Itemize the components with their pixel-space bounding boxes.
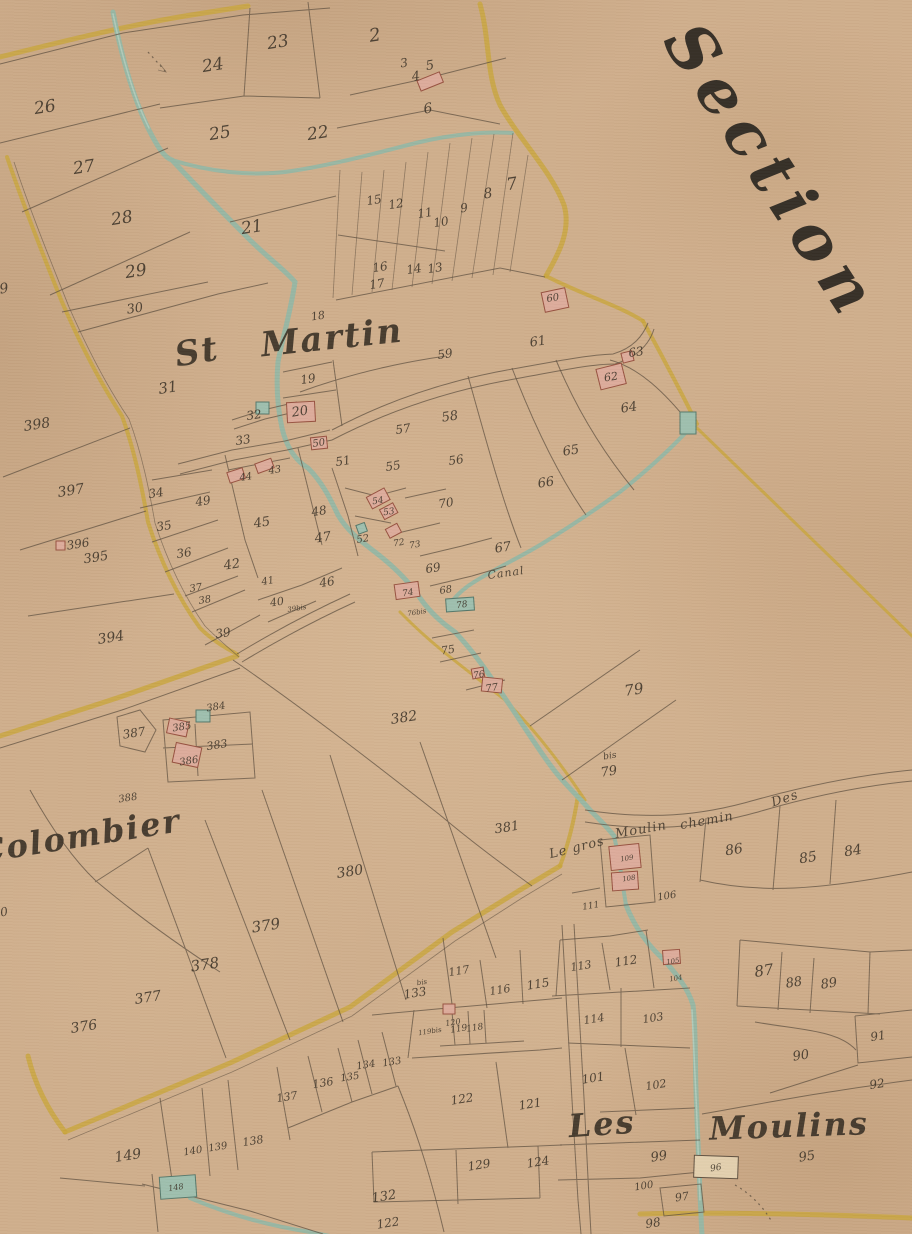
parcel-number: 21	[240, 218, 264, 238]
place-name-label: St	[172, 331, 221, 372]
parcel-number: 99	[650, 1149, 668, 1164]
parcel-number: 26	[33, 98, 57, 118]
parcel-number: 24	[201, 56, 225, 76]
parcel-number: 139	[208, 1142, 228, 1155]
parcel-number: 398	[23, 416, 52, 434]
parcel-number: 54	[372, 497, 385, 508]
parcel-number: 111	[582, 901, 600, 913]
parcel-number: 63	[628, 345, 645, 359]
road-name-label: Le gros	[548, 835, 606, 861]
parcel-number: 27	[72, 158, 96, 178]
parcel-number: 73	[409, 541, 422, 552]
parcel-number: 133	[382, 1057, 402, 1070]
parcel-number: 72	[393, 539, 406, 550]
parcel-number: 50	[312, 438, 326, 450]
parcel-number: 62	[603, 370, 619, 383]
parcel-number: 386	[179, 756, 199, 769]
parcel-number: 76	[473, 671, 486, 682]
parcel-number: 116	[489, 983, 511, 997]
parcel-number: 64	[620, 400, 638, 415]
parcel-number: 9	[459, 201, 468, 214]
parcel-number: 92	[869, 1077, 886, 1091]
parcel-number: 119bis	[418, 1027, 442, 1038]
parcel-number: 85	[798, 850, 818, 867]
parcel-number: 42	[223, 557, 241, 572]
parcel-number: 0	[0, 905, 9, 918]
parcel-number: 6	[422, 101, 433, 116]
parcel-number: 385	[172, 722, 192, 735]
parcel-number: 117	[448, 964, 470, 978]
road-name-label: Canal	[487, 565, 525, 581]
parcel-number: 134	[356, 1060, 376, 1073]
parcel-number: 32	[246, 408, 263, 422]
parcel-number: 40	[269, 595, 285, 608]
parcel-number: 51	[335, 454, 352, 468]
parcel-number: 382	[390, 709, 419, 727]
parcel-number: 45	[253, 515, 271, 530]
parcel-number: 13	[427, 261, 444, 275]
parcel-number: 122	[376, 1215, 401, 1230]
parcel-number: 381	[494, 820, 521, 837]
parcel-number: 95	[798, 1149, 816, 1164]
parcel-number: 98	[645, 1216, 662, 1230]
parcel-number: 115	[526, 976, 551, 991]
parcel-number: 31	[157, 379, 178, 397]
parcel-number: 38	[198, 595, 212, 607]
parcel-number: 41	[261, 576, 275, 588]
parcel-number: 10	[433, 215, 450, 229]
parcel-number: 75	[440, 643, 456, 656]
parcel-number: 14	[406, 262, 423, 276]
parcel-number: 106	[657, 891, 677, 904]
parcel-number: 104	[669, 974, 683, 983]
parcel-number: 65	[562, 443, 580, 458]
parcel-number: 43	[268, 465, 282, 477]
parcel-number: 19	[300, 372, 317, 386]
parcel-number: 380	[336, 863, 365, 881]
parcel-number: 7	[505, 176, 518, 194]
parcel-number: 33	[235, 433, 252, 447]
parcel-number: 149	[114, 1147, 143, 1165]
parcel-number: 397	[57, 482, 86, 500]
map-labels: StMartinColombierLesMoulinsLe grosMoulin…	[0, 0, 912, 1234]
parcel-number: 29	[124, 262, 148, 282]
parcel-number: 96	[710, 1164, 723, 1175]
parcel-number: 79	[600, 764, 618, 779]
parcel-number: 23	[266, 33, 290, 53]
parcel-number: 20	[291, 404, 309, 419]
cadastral-map: Section StMartinColombierLesMoulinsLe gr…	[0, 0, 912, 1234]
parcel-number: 52	[356, 534, 370, 546]
parcel-number: 77	[485, 683, 499, 695]
parcel-number: 84	[843, 843, 863, 860]
parcel-number: 61	[529, 334, 547, 349]
parcel-number: 49	[195, 494, 212, 508]
parcel-number: 388	[118, 793, 138, 806]
parcel-number: 8	[482, 186, 493, 201]
parcel-number: 100	[634, 1181, 654, 1194]
parcel-number: 67	[494, 540, 512, 555]
parcel-number: 396	[66, 536, 91, 551]
parcel-number: 102	[645, 1078, 667, 1092]
parcel-number: 74	[402, 589, 415, 600]
parcel-number: 16	[372, 260, 389, 274]
parcel-number: 129	[467, 1157, 492, 1172]
parcel-number: 57	[395, 422, 412, 436]
parcel-number: 118	[466, 1023, 484, 1035]
parcel-number: 3	[399, 56, 408, 69]
parcel-number: 25	[208, 124, 232, 144]
parcel-number: 377	[134, 989, 163, 1007]
parcel-number: 15	[366, 193, 383, 207]
road-name-label: chemin	[679, 810, 735, 832]
parcel-number: 53	[383, 508, 396, 519]
parcel-number: 89	[820, 976, 838, 991]
parcel-number: 39bis	[287, 604, 307, 614]
parcel-number: 58	[441, 409, 459, 424]
parcel-number: 12	[388, 197, 405, 211]
parcel-number: 87	[753, 962, 774, 980]
parcel-number: 68	[439, 585, 453, 597]
place-name-label: Les	[568, 1106, 637, 1143]
parcel-number: 86	[724, 842, 744, 859]
parcel-number: 46	[319, 575, 336, 589]
parcel-number: 30	[126, 301, 144, 316]
parcel-number: 55	[385, 459, 402, 473]
parcel-number: 48	[311, 504, 328, 518]
parcel-number: 18	[310, 309, 326, 322]
parcel-number: 88	[785, 975, 803, 990]
parcel-number: 378	[190, 955, 221, 974]
parcel-number: 113	[570, 959, 592, 973]
parcel-number: 383	[206, 738, 228, 752]
parcel-number: 90	[792, 1048, 810, 1063]
parcel-number: 35	[156, 519, 173, 533]
parcel-number: 34	[148, 486, 165, 500]
parcel-number: 124	[526, 1154, 551, 1169]
parcel-number: 108	[622, 874, 636, 883]
parcel-number: 136	[312, 1076, 334, 1090]
place-name-label: Moulins	[709, 1107, 870, 1145]
parcel-number: 140	[183, 1146, 203, 1159]
parcel-number: 36	[176, 546, 193, 560]
parcel-number: 4	[411, 70, 421, 84]
parcel-number: 135	[340, 1072, 360, 1085]
parcel-number: 91	[870, 1029, 887, 1043]
parcel-number: 97	[674, 1190, 690, 1203]
road-name-label: Des	[770, 789, 800, 810]
parcel-number: 109	[620, 854, 634, 863]
parcel-number: 121	[518, 1096, 543, 1111]
parcel-number: 103	[642, 1011, 664, 1025]
parcel-number: 76bis	[407, 608, 427, 618]
parcel-number: 105	[666, 957, 680, 966]
parcel-number: 22	[306, 124, 330, 144]
place-name-label: Martin	[259, 314, 405, 363]
parcel-number: 132	[371, 1189, 398, 1206]
parcel-number: 39	[215, 626, 232, 640]
parcel-number: 59	[437, 347, 454, 361]
parcel-number: 47	[314, 530, 332, 545]
parcel-number: 11	[417, 206, 434, 220]
parcel-number: 5	[425, 59, 435, 73]
road-name-label: Moulin	[614, 819, 668, 841]
parcel-number: 112	[614, 953, 639, 968]
place-name-label: Colombier	[0, 804, 183, 868]
parcel-number: 44	[239, 472, 253, 484]
parcel-number: 9	[0, 281, 10, 296]
parcel-number: 114	[583, 1012, 605, 1026]
parcel-number: 17	[369, 277, 386, 291]
parcel-number: 70	[438, 496, 455, 510]
parcel-number: 137	[276, 1090, 298, 1104]
parcel-number: 28	[110, 209, 134, 229]
parcel-number: 395	[83, 550, 110, 567]
parcel-number: 394	[97, 629, 126, 647]
parcel-number: 138	[242, 1134, 264, 1148]
parcel-number: 133	[403, 985, 428, 1000]
parcel-number: 101	[581, 1070, 606, 1085]
parcel-number: 69	[425, 561, 442, 575]
parcel-number: 78	[456, 601, 469, 612]
parcel-number: 56	[448, 453, 465, 467]
parcel-number: 37	[189, 583, 203, 595]
parcel-number: 66	[537, 475, 555, 490]
parcel-number: 379	[251, 916, 282, 935]
parcel-number: bis	[603, 752, 618, 763]
parcel-number: 122	[450, 1091, 475, 1106]
parcel-number: 148	[168, 1183, 184, 1193]
parcel-number: 60	[546, 293, 560, 305]
parcel-number: 79	[623, 681, 644, 699]
parcel-number: 2	[368, 26, 382, 46]
parcel-number: 384	[206, 702, 226, 715]
parcel-number: 376	[70, 1018, 99, 1036]
parcel-number: 387	[122, 725, 147, 740]
